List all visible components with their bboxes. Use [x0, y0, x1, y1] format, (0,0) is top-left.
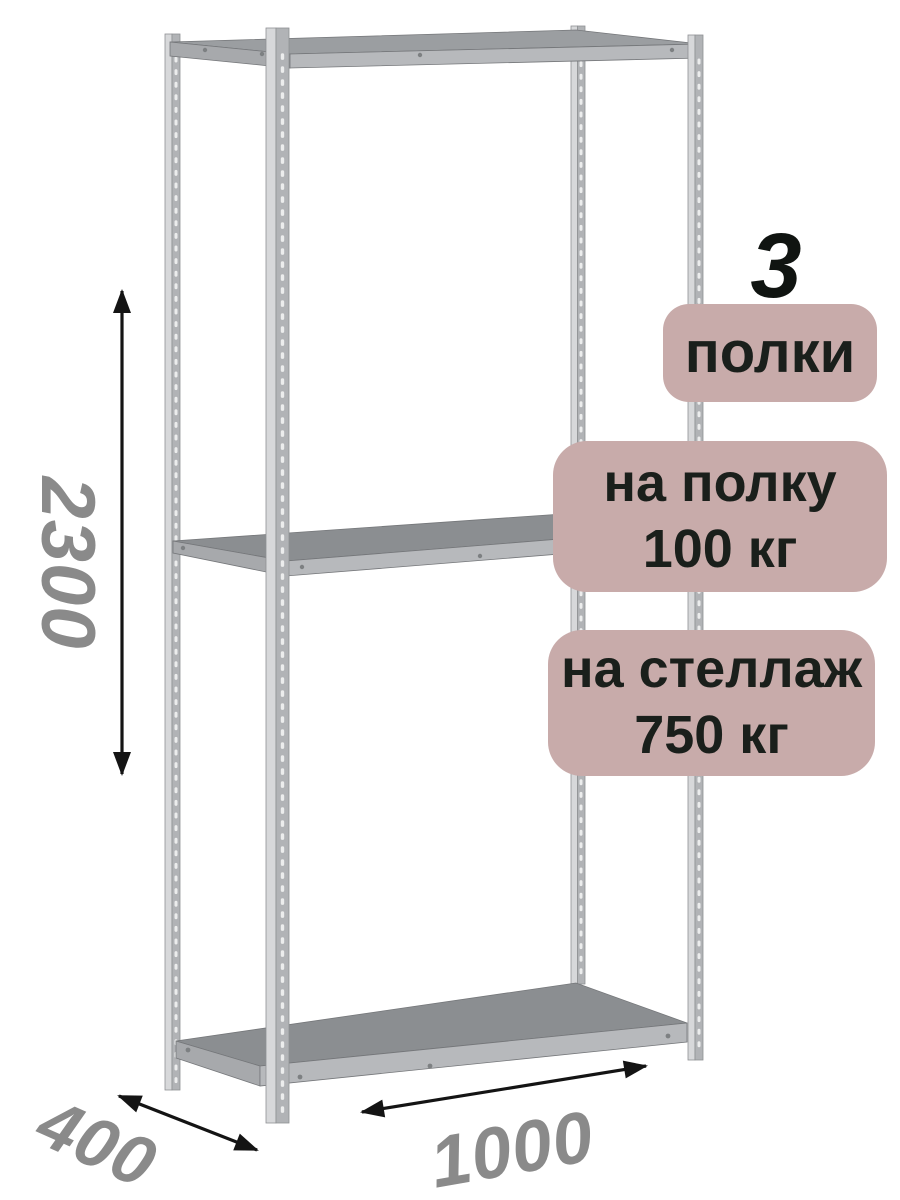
shelf-top — [170, 30, 700, 68]
post-front-left — [266, 28, 289, 1123]
per-shelf-load-line2: 100 кг — [643, 517, 798, 583]
width-arrow-icon — [362, 1066, 646, 1112]
per-rack-load-badge: на стеллаж 750 кг — [548, 630, 875, 776]
per-rack-load-line1: на стеллаж — [561, 637, 862, 703]
shelf-count-number: 3 — [750, 220, 801, 312]
per-rack-load-line2: 750 кг — [634, 703, 789, 769]
product-infographic: 2300 400 1000 3 полки на полку 100 кг на… — [0, 0, 900, 1200]
post-back-left — [165, 34, 180, 1090]
shelf-count-badge: полки — [663, 304, 877, 402]
height-dimension-label: 2300 — [29, 476, 105, 649]
shelf-count-label: полки — [685, 318, 856, 389]
rack-illustration — [0, 0, 900, 1200]
per-shelf-load-badge: на полку 100 кг — [553, 441, 887, 592]
per-shelf-load-line1: на полку — [603, 451, 836, 517]
